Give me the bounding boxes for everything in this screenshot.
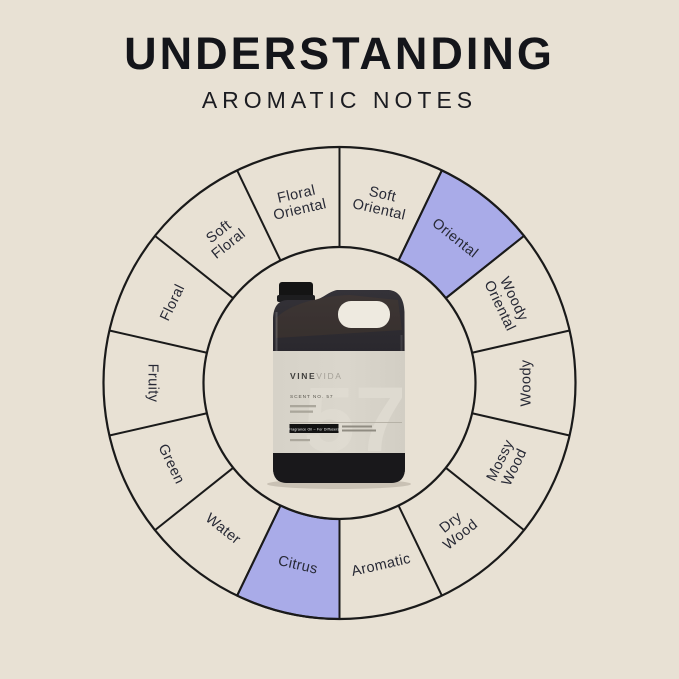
- segment-label-floral-oriental: FloralOriental: [268, 181, 328, 224]
- segment-label-soft-floral: SoftFloral: [199, 214, 249, 263]
- segment-label-dry-wood: DryWood: [431, 504, 481, 553]
- product-badge-label: Fragrance Oil – For Diffusers: [289, 427, 340, 431]
- product-bottle: 57 VINEVIDA SCENT NO. 57 Fragrance Oil –…: [267, 282, 411, 489]
- segment-label-green: Green: [155, 442, 188, 487]
- label-rule: [290, 422, 402, 423]
- fine-print-line: [290, 405, 316, 407]
- header: UNDERSTANDING AROMATIC NOTES: [0, 0, 679, 112]
- brand-logo-bold: VINE: [290, 371, 316, 381]
- bottle-base-band: [273, 453, 405, 483]
- fine-print-line: [290, 439, 310, 441]
- segment-label-soft-oriental: SoftOriental: [351, 181, 411, 224]
- page-subtitle: AROMATIC NOTES: [0, 89, 679, 112]
- scent-number-line: SCENT NO. 57: [290, 394, 334, 400]
- segment-label-woody-oriental: WoodyOriental: [481, 271, 533, 333]
- brand-logo-light: VIDA: [316, 371, 342, 381]
- segment-divider: [109, 330, 206, 352]
- segment-divider: [472, 330, 569, 352]
- segment-label-woody: Woody: [519, 359, 535, 406]
- segment-label-fruity: Fruity: [144, 364, 160, 403]
- segment-divider: [399, 506, 442, 596]
- page-title: UNDERSTANDING: [0, 31, 679, 76]
- brand-logo: VINEVIDA: [290, 371, 343, 381]
- fine-print-line: [290, 411, 313, 413]
- fine-print-line: [342, 430, 376, 432]
- segment-label-aromatic: Aromatic: [350, 551, 412, 580]
- segment-divider: [109, 413, 206, 435]
- segment-label-mossy-wood: MossyWood: [484, 437, 532, 491]
- bottle-handle-hole: [338, 301, 390, 328]
- fine-print-line: [342, 426, 372, 428]
- segment-label-floral: Floral: [157, 282, 188, 324]
- aromatic-notes-infographic: UNDERSTANDING AROMATIC NOTES SoftOrienta…: [0, 0, 679, 679]
- segment-label-water: Water: [202, 510, 243, 548]
- segment-divider: [472, 413, 569, 435]
